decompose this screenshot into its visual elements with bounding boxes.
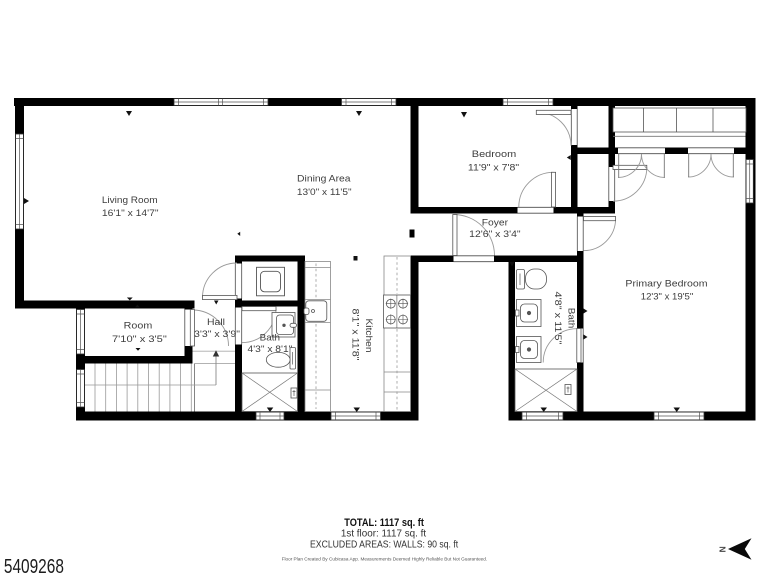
svg-text:EXCLUDED AREAS: WALLS: 90 sq.: EXCLUDED AREAS: WALLS: 90 sq. ft (310, 539, 458, 550)
svg-text:Room: Room (124, 321, 153, 332)
svg-text:8'1" x 11'8": 8'1" x 11'8" (349, 309, 360, 361)
svg-text:1st floor: 1117 sq. ft: 1st floor: 1117 sq. ft (341, 529, 426, 540)
svg-text:12'3" x 19'5": 12'3" x 19'5" (641, 292, 694, 303)
svg-text:7'10" x 3'5": 7'10" x 3'5" (112, 334, 167, 345)
svg-text:Dining Area: Dining Area (297, 174, 351, 185)
svg-text:Hall: Hall (207, 317, 225, 328)
svg-text:4'3" x 8'1": 4'3" x 8'1" (248, 344, 293, 355)
svg-text:Floor Plan Created By Cubicasa: Floor Plan Created By Cubicasa App. Meas… (282, 556, 488, 561)
svg-text:N: N (718, 546, 728, 552)
svg-text:11'9" x 7'8": 11'9" x 7'8" (468, 163, 519, 174)
svg-text:Bedroom: Bedroom (472, 149, 517, 160)
svg-text:Bath: Bath (260, 332, 280, 343)
svg-text:Kitchen: Kitchen (363, 319, 374, 353)
svg-text:3'3" x 3'9": 3'3" x 3'9" (194, 329, 240, 340)
svg-text:4'8" x 11'5": 4'8" x 11'5" (552, 292, 563, 345)
svg-text:12'6" x 3'4": 12'6" x 3'4" (469, 229, 520, 240)
svg-text:5409268: 5409268 (4, 556, 64, 576)
svg-text:13'0" x 11'5": 13'0" x 11'5" (297, 187, 352, 198)
svg-text:16'1" x 14'7": 16'1" x 14'7" (102, 208, 159, 219)
svg-text:Foyer: Foyer (482, 218, 509, 229)
svg-text:Bath: Bath (566, 308, 577, 329)
svg-text:Primary Bedroom: Primary Bedroom (625, 279, 707, 290)
svg-text:TOTAL: 1117 sq. ft: TOTAL: 1117 sq. ft (344, 517, 424, 529)
svg-text:Living Room: Living Room (102, 195, 158, 206)
